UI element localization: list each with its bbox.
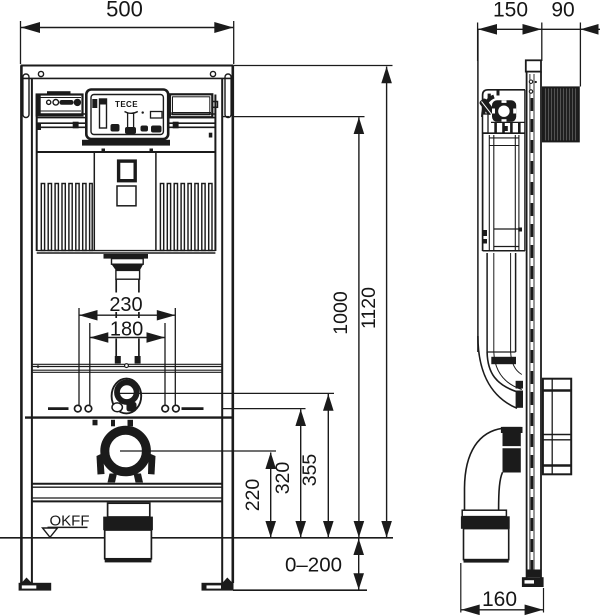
svg-text:230: 230 (109, 294, 142, 316)
svg-text:150: 150 (493, 0, 528, 22)
svg-text:320: 320 (272, 462, 294, 495)
svg-text:TECE: TECE (115, 100, 138, 109)
svg-text:160: 160 (482, 588, 517, 611)
svg-text:90: 90 (551, 0, 574, 22)
svg-text:0–200: 0–200 (285, 554, 342, 577)
svg-text:500: 500 (106, 0, 143, 22)
svg-text:220: 220 (242, 479, 264, 512)
svg-text:180: 180 (110, 319, 143, 341)
svg-text:1000: 1000 (330, 291, 352, 335)
svg-text:355: 355 (299, 454, 321, 487)
svg-text:1120: 1120 (358, 287, 380, 329)
